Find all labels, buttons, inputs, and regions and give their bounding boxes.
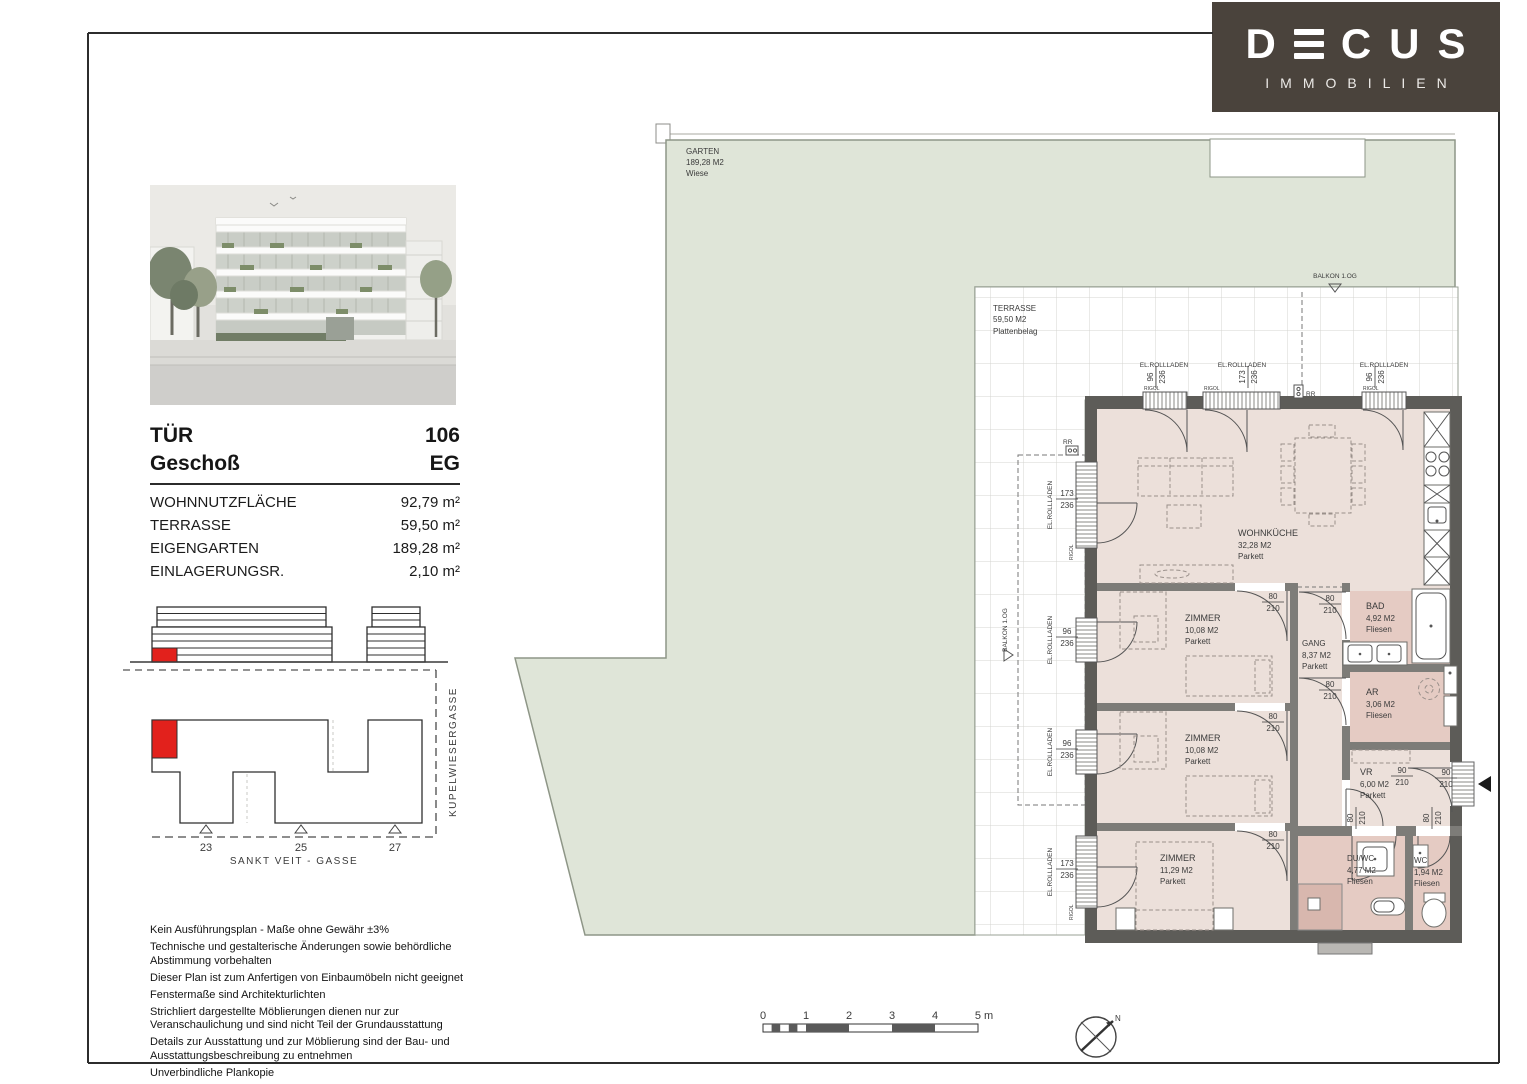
svg-text:Parkett: Parkett [1185,637,1211,646]
svg-text:Parkett: Parkett [1360,791,1386,800]
svg-text:10,08 M2: 10,08 M2 [1185,746,1219,755]
svg-text:236: 236 [1158,370,1167,384]
svg-text:236: 236 [1060,751,1074,760]
terrace-surface: Plattenbelag [993,327,1037,336]
garden-surface: Wiese [686,169,709,178]
svg-text:Fliesen: Fliesen [1347,877,1373,886]
svg-text:Fliesen: Fliesen [1366,711,1392,720]
svg-text:Fliesen: Fliesen [1366,625,1392,634]
svg-text:4,77 M2: 4,77 M2 [1347,866,1376,875]
svg-text:5 m: 5 m [975,1010,993,1022]
svg-text:8,37 M2: 8,37 M2 [1302,651,1331,660]
svg-text:236: 236 [1060,639,1074,648]
svg-text:173: 173 [1060,489,1074,498]
svg-text:AR: AR [1366,687,1379,697]
svg-text:173: 173 [1060,859,1074,868]
svg-text:RIGOL: RIGOL [1144,386,1160,392]
svg-text:6,00 M2: 6,00 M2 [1360,780,1389,789]
entrance-arrow-icon [1478,776,1491,792]
svg-text:Parkett: Parkett [1302,662,1328,671]
svg-text:210: 210 [1266,842,1280,851]
scale-bar: 0 1 2 3 4 5 m [760,1010,993,1032]
entrance-sill [1452,762,1474,806]
svg-text:90: 90 [1398,766,1407,775]
north-arrow: N [1076,1014,1121,1057]
garden-area-value: 189,28 M2 [686,158,724,167]
svg-text:80: 80 [1269,592,1278,601]
svg-text:ZIMMER: ZIMMER [1160,853,1196,863]
svg-text:236: 236 [1060,501,1074,510]
svg-text:210: 210 [1358,811,1367,825]
svg-text:EL.ROLLLADEN: EL.ROLLLADEN [1047,847,1054,896]
balcony-above-label: BALKON 1.OG [1313,273,1357,280]
svg-text:210: 210 [1323,692,1337,701]
svg-text:236: 236 [1250,370,1259,384]
svg-text:80: 80 [1326,680,1335,689]
house-number: 25 [295,842,307,854]
highlight-unit-elevation [152,648,177,662]
svg-text:EL.ROLLLADEN: EL.ROLLLADEN [1218,362,1267,369]
svg-text:Parkett: Parkett [1185,757,1211,766]
svg-text:210: 210 [1266,604,1280,613]
svg-text:96: 96 [1365,372,1374,381]
street-label-right: KUPELWIESERGASSE [448,687,459,817]
svg-text:90: 90 [1442,768,1451,777]
svg-text:EL.ROLLLADEN: EL.ROLLLADEN [1047,480,1054,529]
highlight-unit-siteplan [152,720,177,758]
svg-text:BAD: BAD [1366,601,1385,611]
svg-text:32,28 M2: 32,28 M2 [1238,541,1272,550]
svg-text:EL.ROLLLADEN: EL.ROLLLADEN [1047,727,1054,776]
garden-name: GARTEN [686,147,719,156]
svg-text:RIGOL: RIGOL [1069,904,1075,920]
svg-text:236: 236 [1060,871,1074,880]
svg-text:Parkett: Parkett [1238,552,1264,561]
svg-text:Parkett: Parkett [1160,877,1186,886]
svg-text:4: 4 [932,1010,938,1022]
svg-text:RR: RR [1306,391,1316,398]
north-label: N [1115,1014,1121,1023]
street-label-bottom: SANKT VEIT - GASSE [230,856,358,867]
svg-text:96: 96 [1063,739,1072,748]
svg-text:80: 80 [1269,712,1278,721]
svg-text:3,06 M2: 3,06 M2 [1366,700,1395,709]
svg-text:EL.ROLLLADEN: EL.ROLLLADEN [1140,362,1189,369]
svg-text:210: 210 [1434,811,1443,825]
svg-text:GANG: GANG [1302,639,1326,648]
terrace-area-value: 59,50 M2 [993,315,1027,324]
site-plan-diagram: 23 25 27 SANKT VEIT - GASSE KUPELWIESERG… [152,670,459,867]
svg-text:RIGOL: RIGOL [1363,386,1379,392]
svg-text:DU/WC: DU/WC [1347,854,1374,863]
svg-text:EL.ROLLLADEN: EL.ROLLLADEN [1360,362,1409,369]
svg-text:210: 210 [1395,778,1409,787]
svg-text:2: 2 [846,1010,852,1022]
svg-text:EL.ROLLLADEN: EL.ROLLLADEN [1047,615,1054,664]
svg-text:0: 0 [760,1010,766,1022]
svg-text:RIGOL: RIGOL [1204,386,1220,392]
svg-text:96: 96 [1063,627,1072,636]
svg-text:96: 96 [1146,372,1155,381]
house-number: 27 [389,842,401,854]
svg-text:210: 210 [1323,606,1337,615]
svg-text:80: 80 [1269,830,1278,839]
svg-text:WOHNKÜCHE: WOHNKÜCHE [1238,528,1298,538]
svg-text:1: 1 [803,1010,809,1022]
svg-text:80: 80 [1326,594,1335,603]
svg-text:80: 80 [1422,813,1431,822]
svg-text:ZIMMER: ZIMMER [1185,613,1221,623]
house-number: 23 [200,842,212,854]
svg-text:210: 210 [1439,780,1453,789]
svg-text:WC: WC [1414,856,1428,865]
svg-text:11,29 M2: 11,29 M2 [1160,866,1193,875]
ar-floor [1350,672,1450,742]
svg-text:3: 3 [889,1010,895,1022]
svg-text:ZIMMER: ZIMMER [1185,733,1221,743]
svg-text:236: 236 [1377,370,1386,384]
svg-text:4,92 M2: 4,92 M2 [1366,614,1395,623]
svg-text:10,08 M2: 10,08 M2 [1185,626,1219,635]
svg-text:RR: RR [1063,439,1073,446]
kitchen-units [1424,412,1450,585]
entrance-markers [200,825,401,833]
room-label-duwc: DU/WC 4,77 M2 Fliesen [1347,854,1376,886]
plan-sheet: 23 25 27 SANKT VEIT - GASSE KUPELWIESERG… [0,0,1527,1080]
svg-text:210: 210 [1266,724,1280,733]
elevation-diagram [123,607,448,670]
svg-text:1,94 M2: 1,94 M2 [1414,868,1443,877]
svg-text:173: 173 [1238,370,1247,384]
balcony-left-label: BALKON 1.OG [1002,608,1009,652]
terrace-name: TERRASSE [993,304,1036,313]
svg-text:VR: VR [1360,767,1373,777]
svg-text:80: 80 [1346,813,1355,822]
svg-text:Fliesen: Fliesen [1414,879,1440,888]
svg-text:RIGOL: RIGOL [1069,544,1075,560]
